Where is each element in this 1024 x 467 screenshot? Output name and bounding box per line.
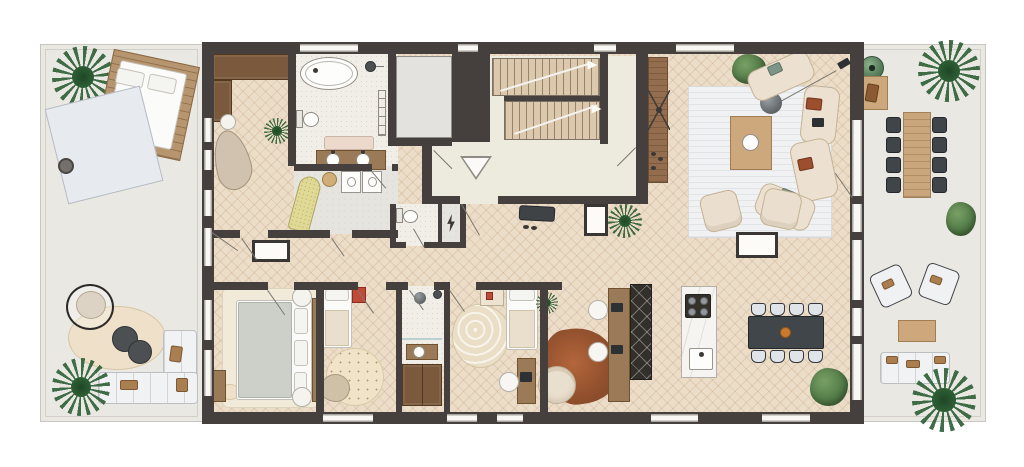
hall-shoe-bench bbox=[519, 205, 556, 222]
coffee-table-bowl bbox=[742, 134, 759, 151]
wall-wc-tech-divider bbox=[438, 204, 442, 244]
outdoor-chair-5 bbox=[932, 117, 947, 133]
palm-plant-ne bbox=[918, 40, 980, 102]
master-duvet bbox=[238, 302, 292, 398]
window-right-5 bbox=[852, 344, 862, 400]
wall-side-corridor-right bbox=[636, 54, 648, 204]
kid2-pillow bbox=[509, 289, 535, 301]
window-bottom-5 bbox=[762, 414, 810, 422]
window-left-5 bbox=[204, 350, 212, 396]
dining-chair-8 bbox=[808, 350, 823, 363]
coat-rack-center bbox=[656, 107, 662, 113]
kitchen-x-cabinet-row bbox=[630, 284, 652, 380]
kid1-beanbag bbox=[320, 374, 350, 402]
landing-floor bbox=[430, 142, 648, 204]
sofa-west-pillow-3 bbox=[176, 378, 188, 392]
window-right-2 bbox=[852, 204, 862, 232]
wall-bedrooms-top-a bbox=[212, 282, 268, 290]
kids-bath-shower-head bbox=[433, 290, 442, 299]
pouf-2 bbox=[128, 340, 152, 364]
wall-master-kid1 bbox=[316, 290, 324, 412]
hall-x-closet bbox=[584, 204, 608, 236]
window-top-2 bbox=[594, 44, 616, 52]
burner-4 bbox=[700, 308, 708, 316]
wall-bedrooms-top-c bbox=[386, 282, 408, 290]
window-bottom-1 bbox=[323, 414, 373, 422]
dining-chair-2 bbox=[770, 303, 785, 316]
runner-shoe-3 bbox=[651, 166, 656, 170]
outdoor-chair-3 bbox=[886, 157, 901, 173]
wall-under-landing-a bbox=[422, 196, 460, 204]
dining-chair-7 bbox=[789, 350, 804, 363]
kid2-laptop bbox=[520, 372, 532, 382]
window-top-slider bbox=[676, 44, 734, 52]
wall-wc-bottom-a bbox=[390, 242, 406, 248]
washer bbox=[341, 171, 361, 193]
window-bottom-3 bbox=[497, 414, 523, 422]
sofa-east-pillow-3 bbox=[934, 356, 946, 364]
window-right-3 bbox=[852, 240, 862, 300]
bath-toilet-tank bbox=[296, 110, 303, 128]
island-tap bbox=[699, 352, 704, 357]
burner-2 bbox=[700, 297, 708, 305]
outdoor-chair-1 bbox=[886, 117, 901, 133]
vanity-tap-1 bbox=[331, 150, 335, 154]
outdoor-chair-7 bbox=[932, 157, 947, 173]
bathtub-inner bbox=[305, 61, 353, 86]
bath-mat bbox=[324, 136, 374, 150]
hall-shoe-1 bbox=[523, 225, 529, 229]
wall-bedrooms-top-b bbox=[294, 282, 358, 290]
kid2-desk-chair bbox=[499, 372, 519, 392]
sofa-east-pillow-1 bbox=[886, 356, 898, 364]
nightstand-top bbox=[292, 287, 312, 307]
wall-elevator-stairs bbox=[452, 54, 490, 142]
office-laptop-1 bbox=[611, 303, 623, 312]
window-top-shower bbox=[300, 44, 358, 52]
kid2-blanket bbox=[509, 310, 535, 348]
elevator-cab bbox=[396, 56, 452, 138]
sofa-east-pillow-2 bbox=[906, 360, 920, 368]
vanity-tap-2 bbox=[361, 150, 365, 154]
office-laptop-2 bbox=[611, 345, 623, 354]
wall-stairs-right bbox=[600, 54, 608, 144]
wall-bath-laundry-a bbox=[294, 164, 372, 171]
dining-chair-3 bbox=[789, 303, 804, 316]
outdoor-chair-4 bbox=[886, 177, 901, 193]
office-chair-1 bbox=[588, 300, 608, 320]
runner-shoe-1 bbox=[651, 152, 656, 156]
kid1-blanket bbox=[325, 310, 349, 346]
wall-bath-kid2 bbox=[444, 290, 450, 412]
burner-3 bbox=[688, 308, 696, 316]
wall-core-left bbox=[388, 54, 396, 142]
master-cabinet bbox=[212, 370, 226, 402]
dining-bowl bbox=[780, 327, 791, 338]
wall-bedrooms-top-e bbox=[476, 282, 562, 290]
office-chair-2 bbox=[588, 342, 608, 362]
bath-toilet-bowl bbox=[303, 112, 319, 127]
palm-plant-se bbox=[912, 368, 976, 432]
window-left-2 bbox=[204, 150, 212, 170]
wall-bath-laundry-b bbox=[392, 164, 398, 171]
outdoor-chair-6 bbox=[932, 137, 947, 153]
outdoor-chair-8 bbox=[932, 177, 947, 193]
dining-chair-6 bbox=[770, 350, 785, 363]
wall-kid1-bath bbox=[396, 290, 402, 412]
parasol-pole bbox=[58, 158, 74, 174]
dining-chair-4 bbox=[808, 303, 823, 316]
shower-arm bbox=[376, 66, 384, 67]
sofa-pillow-terra-1 bbox=[805, 97, 822, 111]
hall-plant bbox=[608, 204, 642, 238]
sofa-west-pillow-1 bbox=[169, 345, 183, 363]
wc-toilet-bowl bbox=[403, 210, 418, 223]
window-left-4 bbox=[204, 300, 212, 340]
window-right-4 bbox=[852, 308, 862, 336]
wall-bedrooms-top-d bbox=[434, 282, 450, 290]
wall-under-landing-b bbox=[498, 196, 638, 204]
kid2-pin-red bbox=[486, 292, 493, 300]
window-bottom-2 bbox=[447, 414, 477, 422]
kids-bath-wardrobe bbox=[402, 364, 442, 406]
armchair-2 bbox=[758, 186, 803, 231]
burner-1 bbox=[688, 297, 696, 305]
corridor-x-closet bbox=[252, 240, 290, 262]
master-pillow-1 bbox=[294, 308, 308, 334]
sofa-tray bbox=[812, 118, 824, 127]
outdoor-dining-table bbox=[903, 112, 931, 198]
towel-ladder bbox=[378, 90, 386, 136]
runner-shoe-2 bbox=[658, 157, 663, 161]
stair-side-corridor bbox=[608, 56, 638, 142]
egg-chair-seat bbox=[76, 291, 106, 319]
window-bottom-4 bbox=[651, 414, 698, 422]
wc-toilet-tank bbox=[396, 208, 403, 223]
window-top-1 bbox=[458, 44, 478, 52]
dining-chair-1 bbox=[751, 303, 766, 316]
nightstand-bottom bbox=[292, 387, 312, 407]
outdoor-coffee-table bbox=[898, 320, 936, 342]
shower-head bbox=[365, 61, 376, 72]
fireplace-x-box bbox=[736, 232, 778, 258]
hall-shoe-2 bbox=[531, 226, 537, 230]
door-left-terrace bbox=[204, 228, 212, 266]
outdoor-chair-2 bbox=[886, 137, 901, 153]
wall-kid2-office bbox=[540, 290, 548, 412]
dining-chair-5 bbox=[751, 350, 766, 363]
dressing-wardrobe-top bbox=[212, 54, 292, 80]
sofa-west-pillow-2 bbox=[120, 380, 138, 390]
kid1-pillow bbox=[325, 289, 349, 301]
dressing-plant bbox=[264, 118, 290, 144]
floor-plan bbox=[0, 0, 1024, 467]
kids-bath-glass bbox=[402, 338, 442, 340]
dressing-tray bbox=[220, 114, 236, 130]
door-right-slider bbox=[852, 120, 862, 196]
wall-leftwing-b bbox=[268, 230, 330, 238]
palm-plant-sw bbox=[52, 358, 110, 416]
wall-elevator-bottom bbox=[388, 138, 452, 146]
kids-bath-sink bbox=[413, 346, 425, 358]
laundry-basket bbox=[322, 172, 337, 187]
wall-dressing-bath bbox=[288, 54, 296, 166]
window-left-3 bbox=[204, 190, 212, 216]
bathtub-drain bbox=[313, 68, 318, 73]
window-left-1 bbox=[204, 118, 212, 142]
master-pillow-2 bbox=[294, 340, 308, 366]
sofa-segment-2 bbox=[799, 84, 841, 145]
